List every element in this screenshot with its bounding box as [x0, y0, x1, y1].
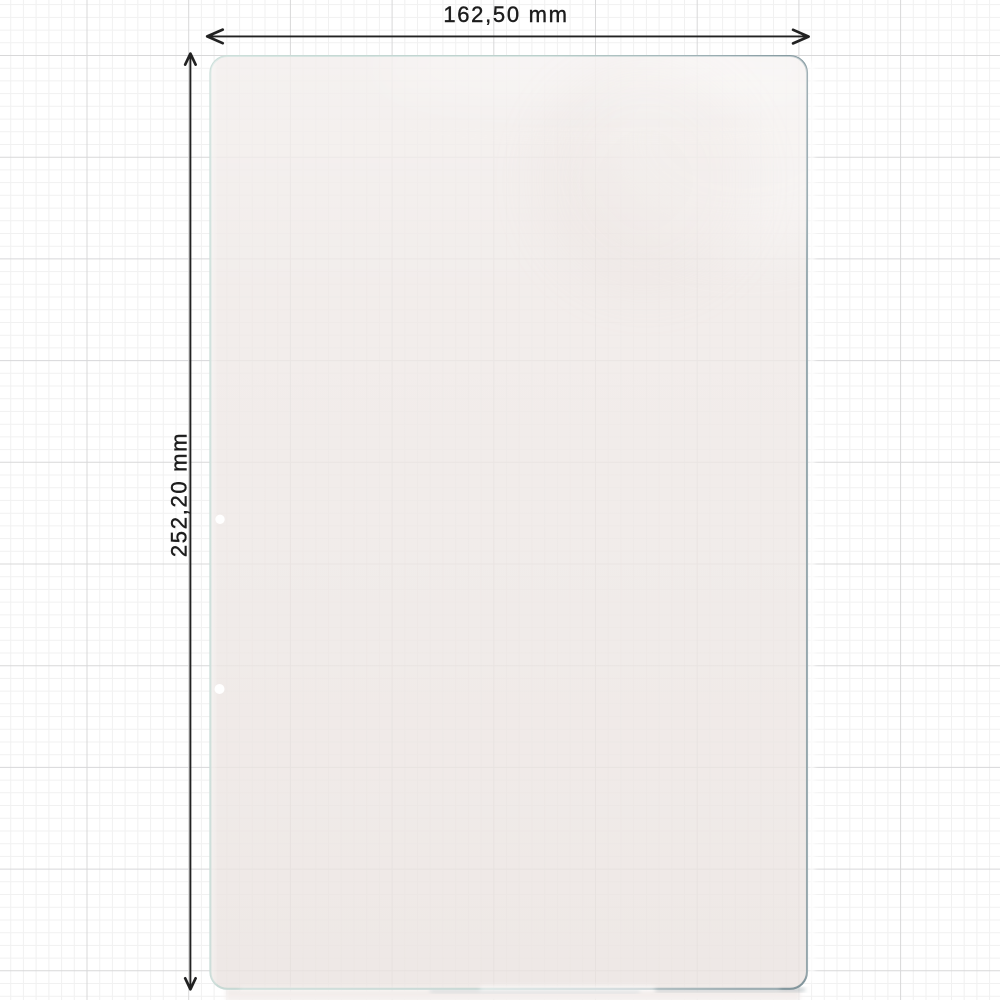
svg-text:252,20 mm: 252,20 mm — [167, 432, 192, 557]
svg-text:162,50 mm: 162,50 mm — [443, 2, 568, 27]
